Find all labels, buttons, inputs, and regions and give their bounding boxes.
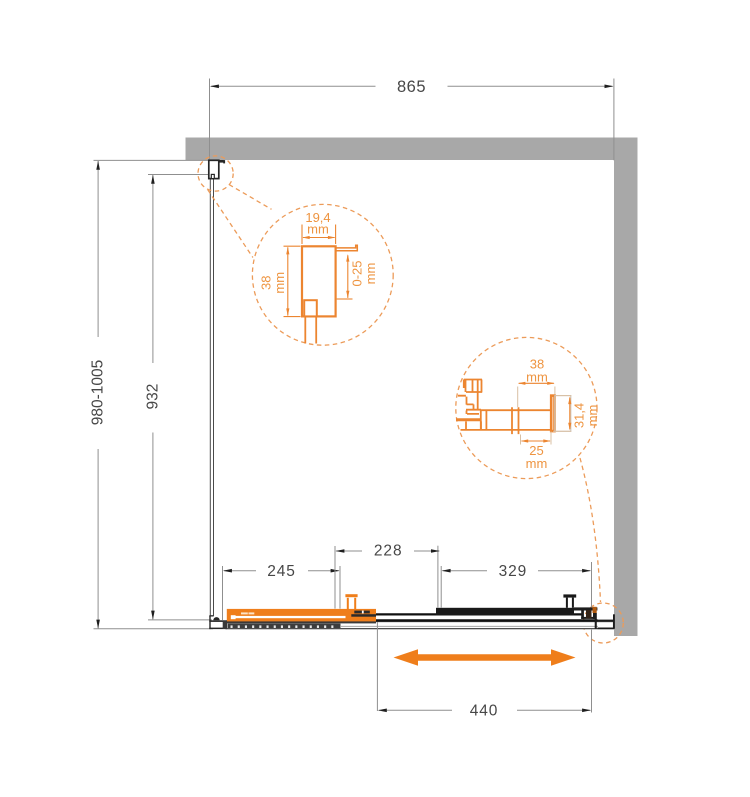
svg-text:mm: mm bbox=[272, 272, 287, 294]
svg-text:329: 329 bbox=[499, 563, 528, 580]
svg-text:mm: mm bbox=[585, 405, 600, 427]
svg-text:980-1005: 980-1005 bbox=[90, 360, 107, 426]
svg-text:mm: mm bbox=[363, 263, 378, 285]
svg-text:245: 245 bbox=[267, 563, 296, 580]
svg-text:865: 865 bbox=[397, 78, 426, 96]
svg-text:932: 932 bbox=[144, 384, 161, 410]
svg-text:440: 440 bbox=[470, 703, 499, 720]
svg-text:228: 228 bbox=[374, 543, 403, 560]
svg-text:mm: mm bbox=[307, 222, 329, 237]
svg-text:mm: mm bbox=[526, 456, 548, 471]
svg-text:mm: mm bbox=[526, 370, 548, 385]
